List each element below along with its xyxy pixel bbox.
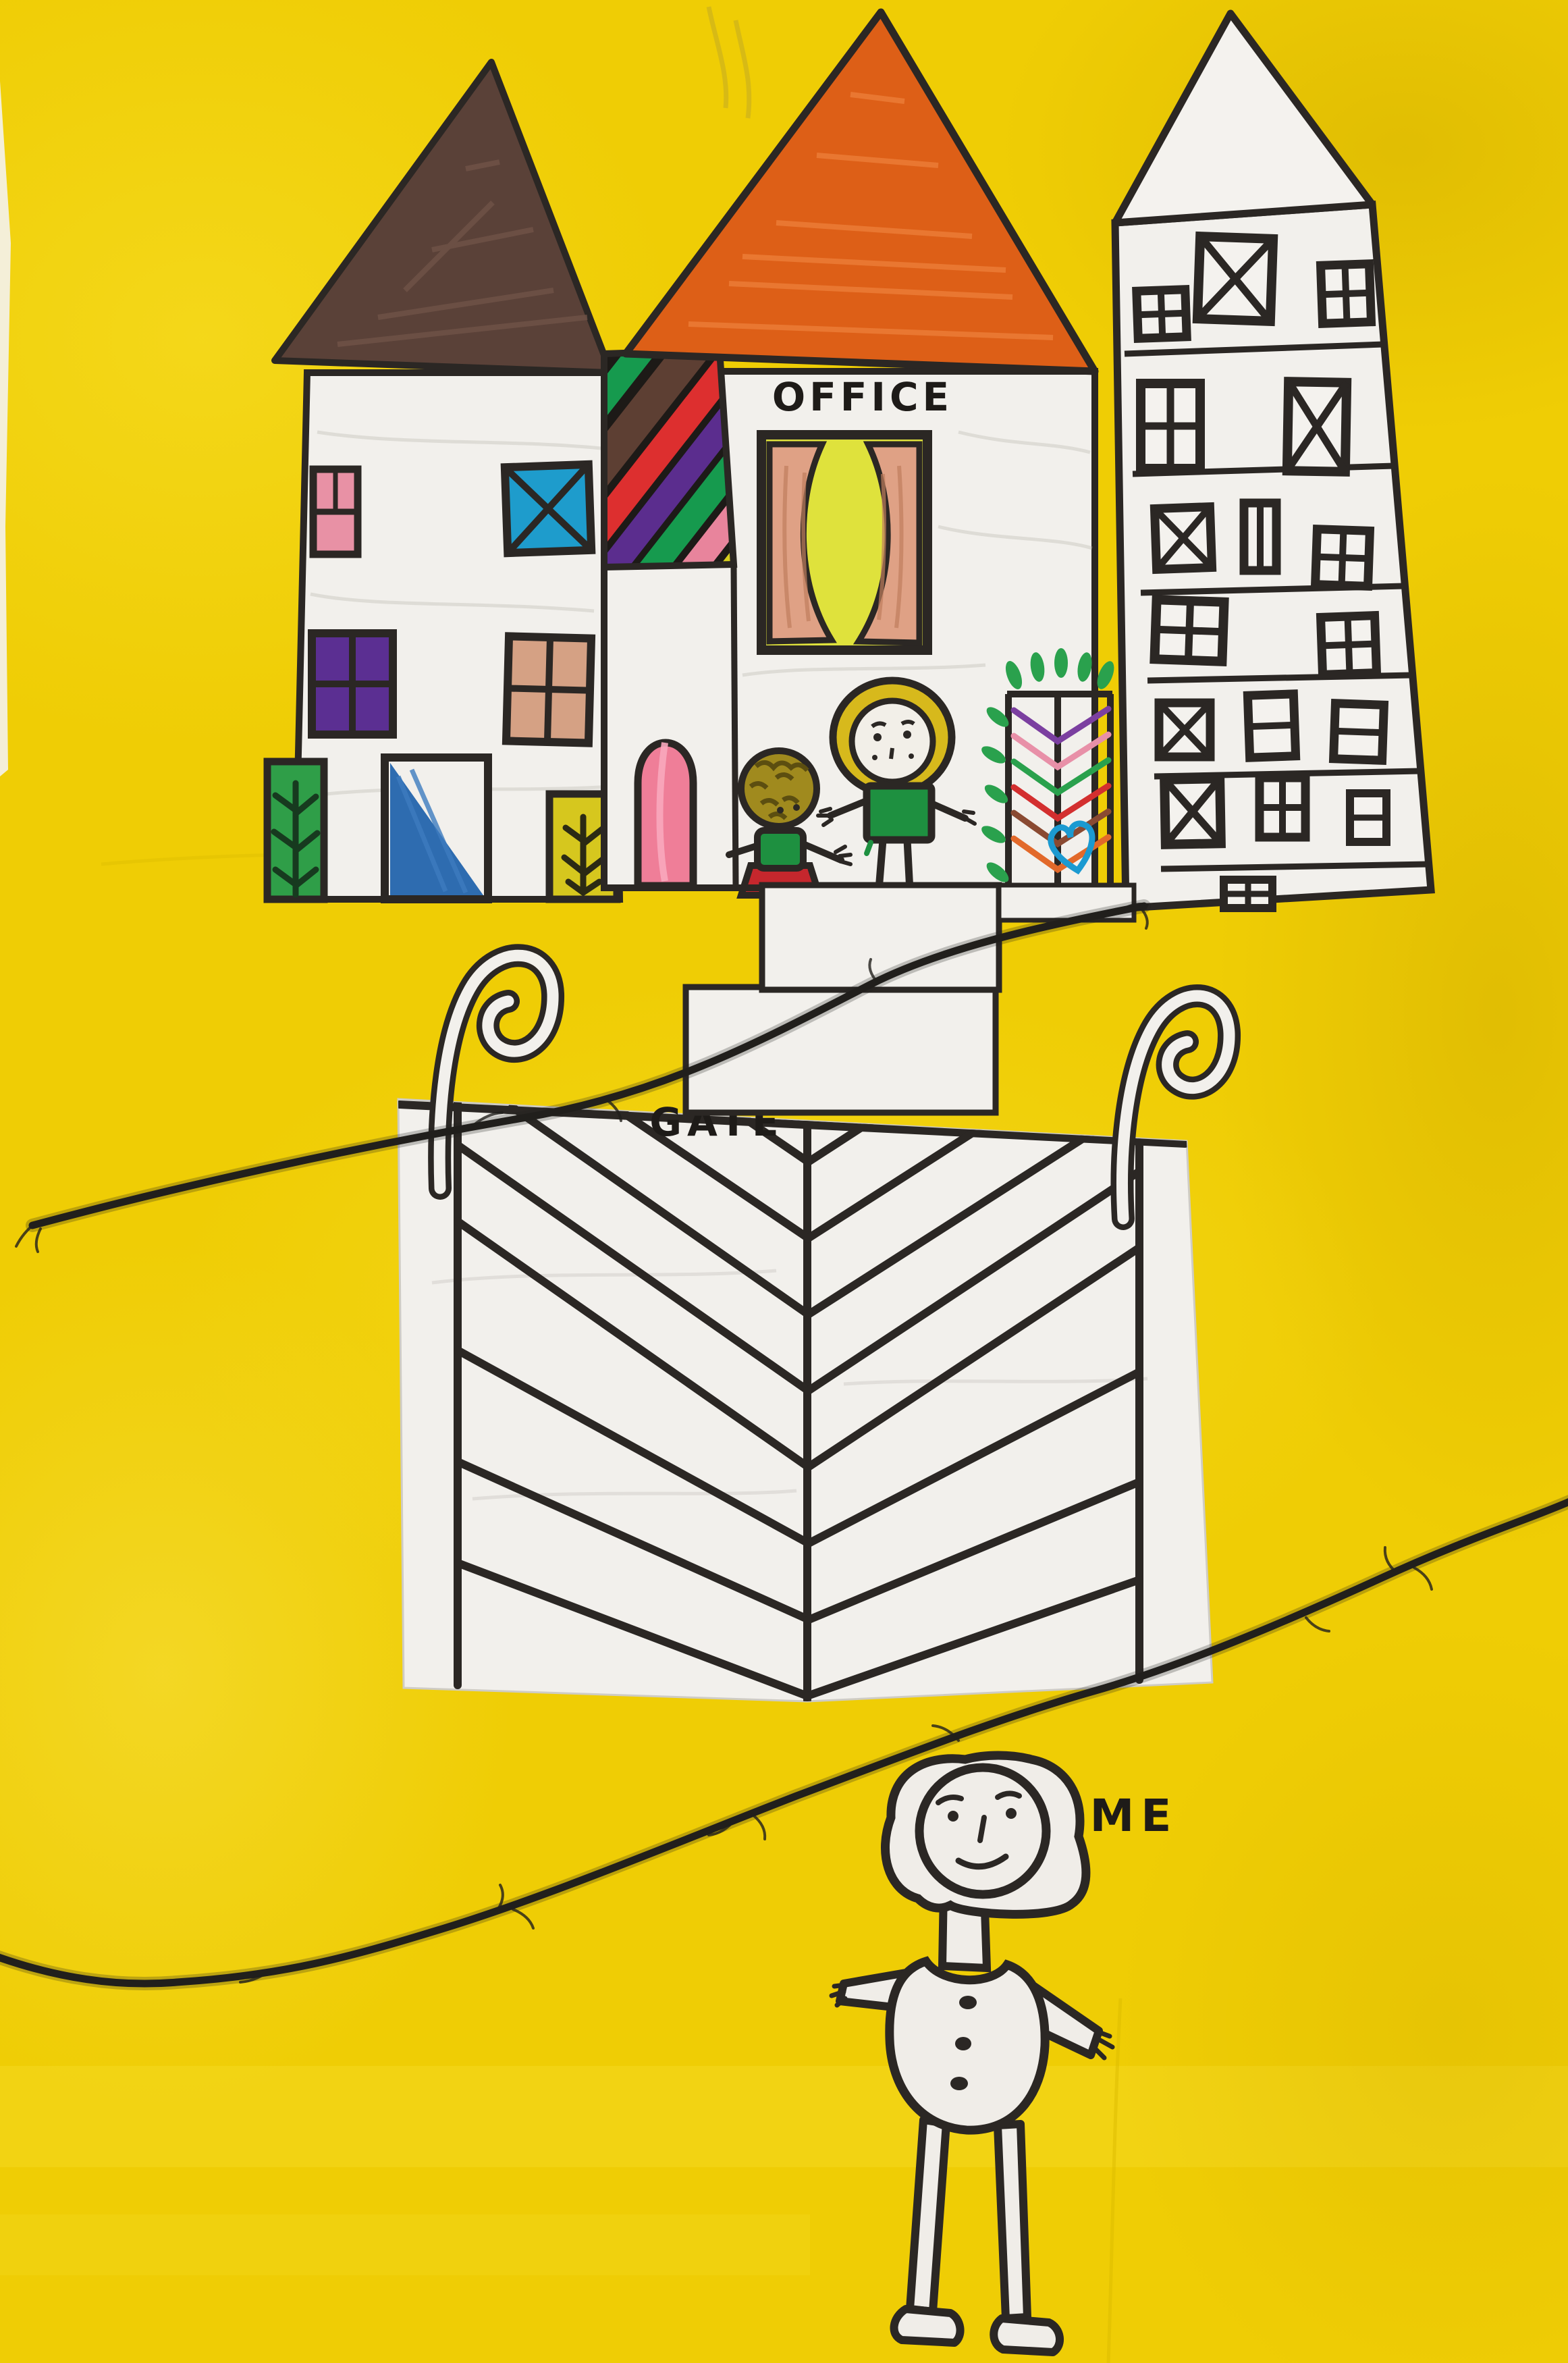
childs-collage-artwork: OFFICE	[0, 0, 1568, 2363]
x-window	[1164, 778, 1221, 844]
purple-window	[312, 633, 393, 735]
me-label: ME	[1090, 1790, 1179, 1842]
x-window	[1287, 381, 1347, 471]
four-pane-window	[1141, 383, 1200, 469]
blue-diagonal-door	[385, 758, 488, 899]
child-shirt	[757, 830, 803, 868]
x-window	[1154, 507, 1212, 570]
blue-x-window	[505, 464, 591, 553]
two-pane-vertical-window	[1244, 503, 1276, 570]
tan-window	[506, 636, 591, 743]
four-pane-window	[1137, 290, 1187, 338]
four-pane-window	[1224, 880, 1272, 908]
two-pane-horizontal-window	[1247, 694, 1295, 758]
office-label: OFFICE	[772, 374, 953, 420]
four-pane-window	[1260, 778, 1305, 837]
artwork-scene: OFFICE	[0, 0, 1568, 2363]
girl-torso	[867, 786, 931, 840]
four-pane-window	[1321, 264, 1372, 323]
green-tree-door	[267, 762, 324, 899]
x-window	[1159, 703, 1210, 757]
four-pane-window	[1321, 616, 1377, 675]
four-pane-window	[1154, 600, 1224, 661]
four-pane-window	[1316, 529, 1370, 587]
x-window	[1197, 236, 1273, 321]
pink-window	[313, 469, 358, 554]
curtain-window	[761, 435, 927, 650]
two-pane-horizontal-window	[1350, 793, 1386, 842]
girl-face	[852, 701, 933, 782]
two-pane-horizontal-window	[1334, 703, 1384, 760]
